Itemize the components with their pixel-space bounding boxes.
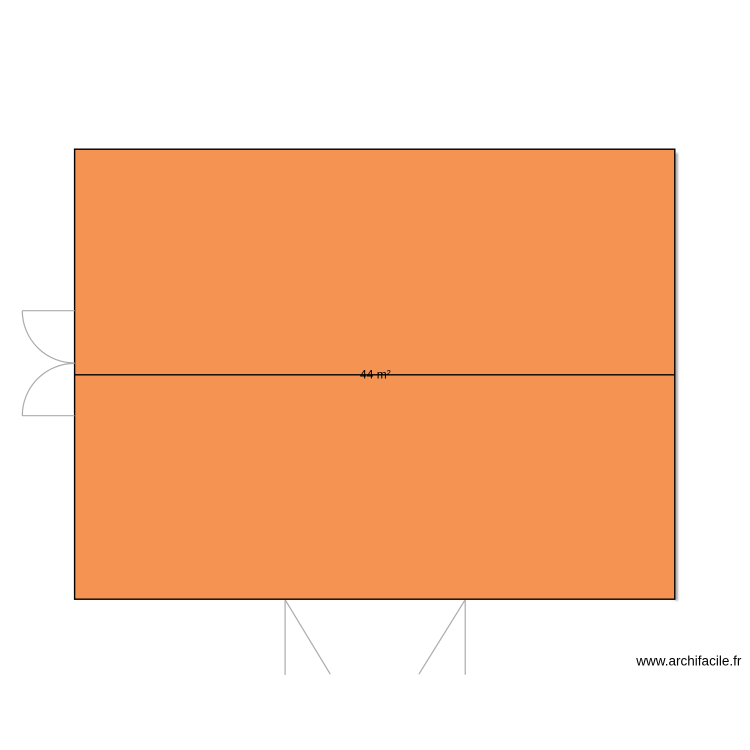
svg-text:44 m²: 44 m² bbox=[360, 368, 391, 382]
svg-text:www.archifacile.fr: www.archifacile.fr bbox=[635, 653, 742, 668]
